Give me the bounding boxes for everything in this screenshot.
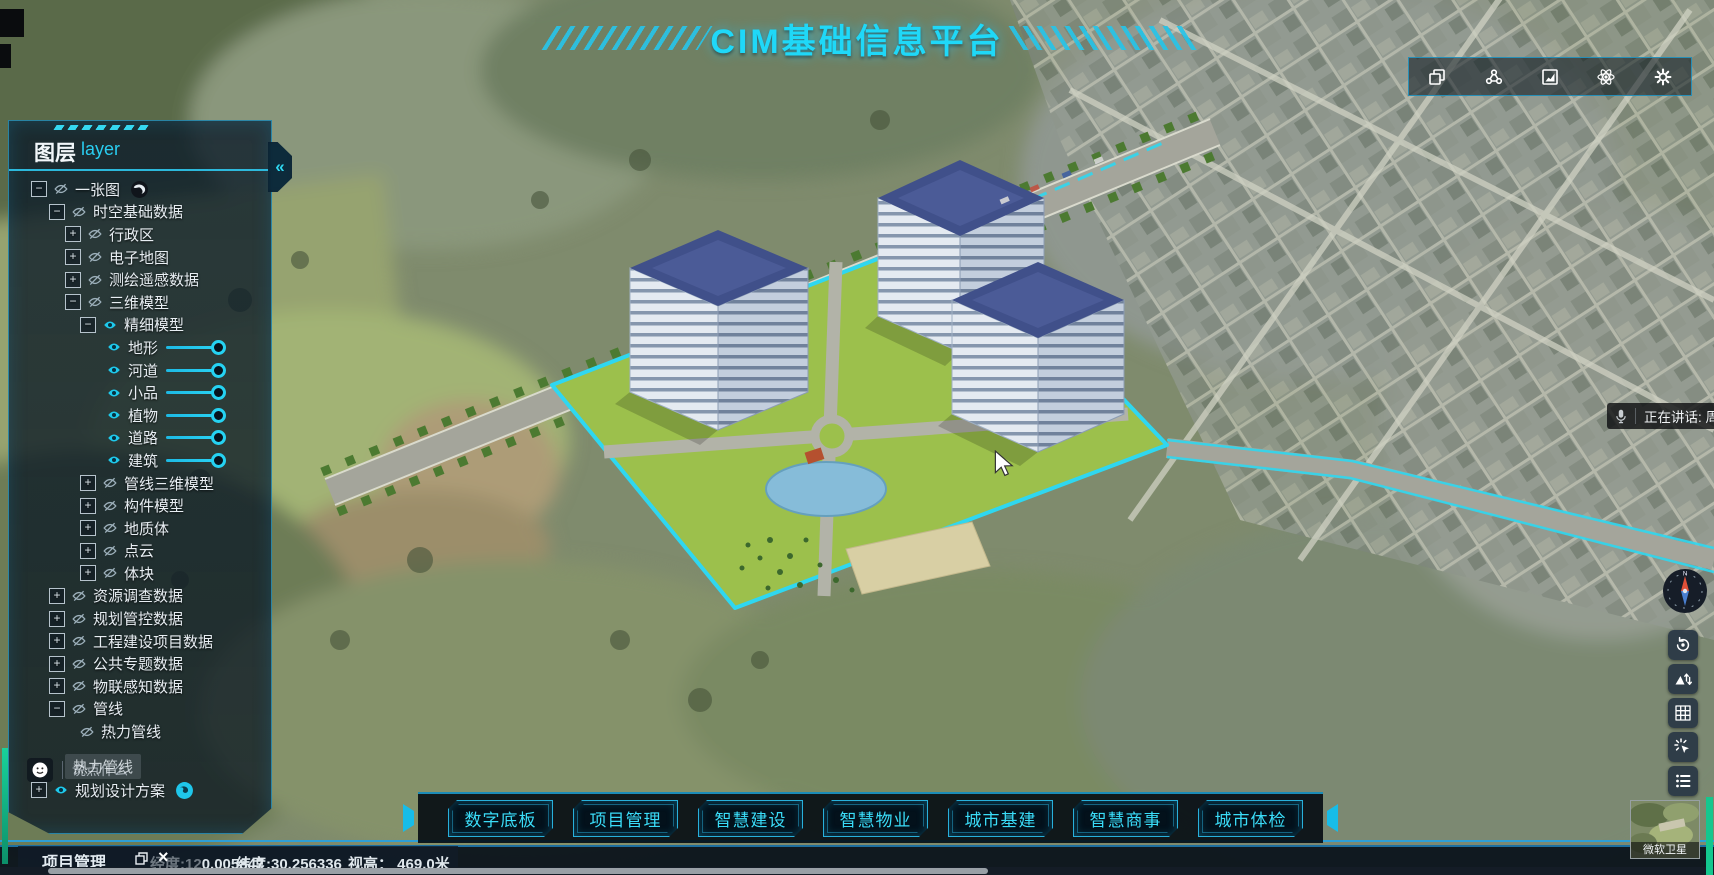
opacity-slider[interactable]	[166, 369, 220, 372]
tree-node-label[interactable]: 规划管控数据	[93, 608, 183, 629]
tree-node-测绘遥感数据[interactable]: +测绘遥感数据	[9, 268, 271, 291]
tree-node-公共专题数据[interactable]: +公共专题数据	[9, 652, 271, 675]
visibility-off-icon[interactable]	[87, 226, 103, 242]
tree-node-label[interactable]: 管线三维模型	[124, 473, 214, 494]
opacity-slider[interactable]	[166, 414, 220, 417]
nav-button-deco	[451, 792, 479, 798]
map-tools-toolbar	[1668, 630, 1698, 796]
divider	[62, 761, 63, 779]
tree-node-三维模型[interactable]: −三维模型	[9, 291, 271, 314]
visibility-off-icon[interactable]	[71, 633, 87, 649]
right-edge-strip	[1706, 797, 1713, 875]
tree-node-label[interactable]: 植物	[128, 405, 158, 426]
microphone-icon	[1613, 407, 1629, 426]
nav-button-deco	[1201, 792, 1229, 798]
tree-node-植物[interactable]: 植物	[9, 404, 271, 427]
tree-node-管线三维模型[interactable]: +管线三维模型	[9, 472, 271, 495]
globe-dark-icon[interactable]	[130, 180, 149, 199]
visibility-off-icon[interactable]	[87, 272, 103, 288]
tree-node-label[interactable]: 一张图	[75, 179, 120, 200]
visibility-on-icon[interactable]	[106, 452, 122, 468]
layer-panel: 图层 layer −一张图−时空基础数据+行政区+电子地图+测绘遥感数据−三维模…	[8, 120, 272, 834]
layer-panel-title: 图层	[34, 137, 76, 167]
app-window: CIM基础信息平台 图层 layer −一张图−时空基础数据+行政区+电子地图+…	[0, 0, 1714, 875]
visibility-on-icon[interactable]	[102, 317, 118, 333]
slider-knob[interactable]	[211, 408, 226, 423]
layer-tree: −一张图−时空基础数据+行政区+电子地图+测绘遥感数据−三维模型−精细模型地形河…	[9, 178, 271, 743]
nav-button-smart-property[interactable]: 智慧物业	[823, 800, 928, 837]
tree-node-label[interactable]: 管线	[93, 698, 123, 719]
expand-toggle-icon[interactable]: +	[49, 656, 65, 672]
collapse-toggle-icon[interactable]: −	[65, 294, 81, 310]
tree-node-建筑[interactable]: 建筑	[9, 449, 271, 472]
visibility-off-icon[interactable]	[102, 498, 118, 514]
nav-button-deco	[951, 792, 979, 798]
visibility-off-icon[interactable]	[87, 294, 103, 310]
visibility-off-icon[interactable]	[102, 520, 118, 536]
expand-toggle-icon[interactable]: +	[65, 249, 81, 265]
tree-node-label[interactable]: 公共专题数据	[93, 653, 183, 674]
expand-toggle-icon[interactable]: +	[49, 588, 65, 604]
tree-node-label[interactable]: 热力管线	[101, 721, 161, 742]
nav-button-deco	[701, 792, 729, 798]
tree-node-规划管控数据[interactable]: +规划管控数据	[9, 607, 271, 630]
layer-tree-footer: +规划设计方案	[9, 779, 271, 802]
tree-node-label[interactable]: 地形	[128, 337, 158, 358]
tree-node-label[interactable]: 地质体	[124, 518, 169, 539]
statistics-chart-icon[interactable]	[1535, 62, 1565, 92]
tree-node-管线[interactable]: −管线	[9, 698, 271, 721]
expand-toggle-icon[interactable]: +	[49, 611, 65, 627]
tree-node-label[interactable]: 精细模型	[124, 314, 184, 335]
tree-node-一张图[interactable]: −一张图	[9, 178, 271, 201]
settings-gear-icon[interactable]	[1648, 62, 1678, 92]
tree-node-物联感知数据[interactable]: +物联感知数据	[9, 675, 271, 698]
expand-toggle-icon[interactable]: +	[80, 543, 96, 559]
slider-knob[interactable]	[211, 430, 226, 445]
copy-layers-icon[interactable]	[1422, 62, 1452, 92]
collapse-toggle-icon[interactable]: −	[49, 701, 65, 717]
nav-button-deco	[1076, 792, 1104, 798]
reset-view-icon[interactable]	[1668, 630, 1698, 660]
tree-node-label[interactable]: 三维模型	[109, 292, 169, 313]
nav-button-digital-base[interactable]: 数字底板	[448, 800, 553, 837]
click-effect-icon[interactable]	[1668, 732, 1698, 762]
collapse-toggle-icon[interactable]: −	[31, 181, 47, 197]
slider-knob[interactable]	[211, 363, 226, 378]
tree-node-label[interactable]: 体块	[124, 563, 154, 584]
expand-toggle-icon[interactable]: +	[65, 272, 81, 288]
nav-button-smart-construction[interactable]: 智慧建设	[698, 800, 803, 837]
visibility-off-icon[interactable]	[79, 724, 95, 740]
tree-node-label[interactable]: 构件模型	[124, 495, 184, 516]
tree-node-资源调查数据[interactable]: +资源调查数据	[9, 585, 271, 608]
opacity-slider[interactable]	[166, 346, 220, 349]
basemap-switcher[interactable]: 微软卫星	[1630, 800, 1700, 859]
slider-knob[interactable]	[211, 453, 226, 468]
visibility-off-icon[interactable]	[71, 611, 87, 627]
visibility-off-icon[interactable]	[102, 565, 118, 581]
tree-node-道路[interactable]: 道路	[9, 427, 271, 450]
atom-effects-icon[interactable]	[1591, 62, 1621, 92]
nav-button-smart-business[interactable]: 智慧商事	[1073, 800, 1178, 837]
tree-node-label[interactable]: 电子地图	[109, 247, 169, 268]
visibility-off-icon[interactable]	[71, 588, 87, 604]
left-edge-strip	[2, 748, 8, 864]
page-title: CIM基础信息平台	[0, 14, 1714, 63]
visibility-on-icon[interactable]	[106, 430, 122, 446]
opacity-slider[interactable]	[166, 391, 220, 394]
tree-node-label[interactable]: 点云	[124, 540, 154, 561]
expand-toggle-icon[interactable]: +	[80, 498, 96, 514]
basemap-label: 微软卫星	[1631, 842, 1699, 858]
nav-button-project-management[interactable]: 项目管理	[573, 800, 678, 837]
tree-node-label[interactable]: 工程建设项目数据	[93, 631, 213, 652]
restore-window-icon[interactable]	[134, 851, 149, 866]
visibility-on-icon[interactable]	[106, 407, 122, 423]
tree-node-体块[interactable]: +体块	[9, 562, 271, 585]
layer-panel-header: 图层 layer	[9, 129, 271, 171]
visibility-off-icon[interactable]	[71, 656, 87, 672]
tree-node-label[interactable]: 建筑	[128, 450, 158, 471]
tree-node-label[interactable]: 资源调查数据	[93, 585, 183, 606]
legend-list-icon[interactable]	[1668, 766, 1698, 796]
tree-node-label[interactable]: 行政区	[109, 224, 154, 245]
tree-node-电子地图[interactable]: +电子地图	[9, 246, 271, 269]
divider	[1635, 408, 1636, 424]
collapse-toggle-icon[interactable]: −	[49, 204, 65, 220]
opacity-slider[interactable]	[166, 459, 220, 462]
compass-widget[interactable]: N	[1662, 568, 1708, 614]
tree-node-时空基础数据[interactable]: −时空基础数据	[9, 201, 271, 224]
tree-node-行政区[interactable]: +行政区	[9, 223, 271, 246]
tree-node-精细模型[interactable]: −精细模型	[9, 314, 271, 337]
tree-node-label[interactable]: 规划设计方案	[75, 780, 165, 801]
screen-artifact	[0, 44, 11, 68]
tree-node-规划设计方案[interactable]: +规划设计方案	[9, 779, 271, 802]
scene-cluster-icon[interactable]	[1479, 62, 1509, 92]
expand-toggle-icon[interactable]: +	[49, 678, 65, 694]
tree-node-地质体[interactable]: +地质体	[9, 517, 271, 540]
screen-artifact	[0, 9, 24, 37]
layer-panel-subtitle: layer	[81, 139, 120, 160]
nav-button-deco	[576, 792, 604, 798]
tree-node-小品[interactable]: 小品	[9, 381, 271, 404]
nav-button-city-infrastructure[interactable]: 城市基建	[948, 800, 1053, 837]
grid-icon[interactable]	[1668, 698, 1698, 728]
collapse-toggle-icon[interactable]: −	[80, 317, 96, 333]
expand-toggle-icon[interactable]: +	[65, 226, 81, 242]
expand-toggle-icon[interactable]: +	[80, 520, 96, 536]
tree-node-地形[interactable]: 地形	[9, 336, 271, 359]
visibility-off-icon[interactable]	[102, 475, 118, 491]
tree-node-label[interactable]: 道路	[128, 427, 158, 448]
tree-node-label[interactable]: 物联感知数据	[93, 676, 183, 697]
title-deco-right	[1009, 26, 1200, 50]
top-right-toolbar	[1408, 57, 1692, 96]
visibility-off-icon[interactable]	[102, 543, 118, 559]
tree-node-label[interactable]: 小品	[128, 382, 158, 403]
expand-toggle-icon[interactable]: +	[49, 633, 65, 649]
tree-node-label[interactable]: 时空基础数据	[93, 201, 183, 222]
tree-node-点云[interactable]: +点云	[9, 540, 271, 563]
opacity-slider[interactable]	[166, 436, 220, 439]
slider-knob[interactable]	[211, 340, 226, 355]
expand-toggle-icon[interactable]: +	[80, 565, 96, 581]
visibility-on-icon[interactable]	[53, 782, 69, 798]
visibility-on-icon[interactable]	[106, 339, 122, 355]
nav-button-city-checkup[interactable]: 城市体检	[1198, 800, 1303, 837]
horizontal-scrollbar-thumb[interactable]	[48, 868, 988, 874]
slider-knob[interactable]	[211, 385, 226, 400]
voice-speaking-toast: 正在讲话: 周航	[1607, 403, 1714, 429]
tree-node-label[interactable]: 测绘遥感数据	[109, 269, 199, 290]
terrain-exaggeration-icon[interactable]	[1668, 664, 1698, 694]
globe-cyan-icon[interactable]	[175, 781, 194, 800]
visibility-on-icon[interactable]	[106, 385, 122, 401]
tree-node-label[interactable]: 河道	[128, 360, 158, 381]
visibility-off-icon[interactable]	[71, 204, 87, 220]
tree-node-河道[interactable]: 河道	[9, 359, 271, 382]
compass-north-label: N	[1683, 572, 1687, 578]
visibility-on-icon[interactable]	[106, 362, 122, 378]
visibility-off-icon[interactable]	[71, 701, 87, 717]
bottom-nav-bar: 数字底板项目管理智慧建设智慧物业城市基建智慧商事城市体检	[418, 792, 1323, 843]
tree-node-热力管线[interactable]: 热力管线	[9, 720, 271, 743]
dragged-node-ghost: 热力管线	[65, 754, 141, 779]
tree-node-构件模型[interactable]: +构件模型	[9, 494, 271, 517]
speaking-user-text: 正在讲话: 周航	[1644, 406, 1714, 426]
visibility-off-icon[interactable]	[87, 249, 103, 265]
expand-toggle-icon[interactable]: +	[80, 475, 96, 491]
nav-button-deco	[826, 792, 854, 798]
expand-toggle-icon[interactable]: +	[31, 782, 47, 798]
visibility-off-icon[interactable]	[53, 181, 69, 197]
visibility-off-icon[interactable]	[71, 678, 87, 694]
tree-node-工程建设项目数据[interactable]: +工程建设项目数据	[9, 630, 271, 653]
